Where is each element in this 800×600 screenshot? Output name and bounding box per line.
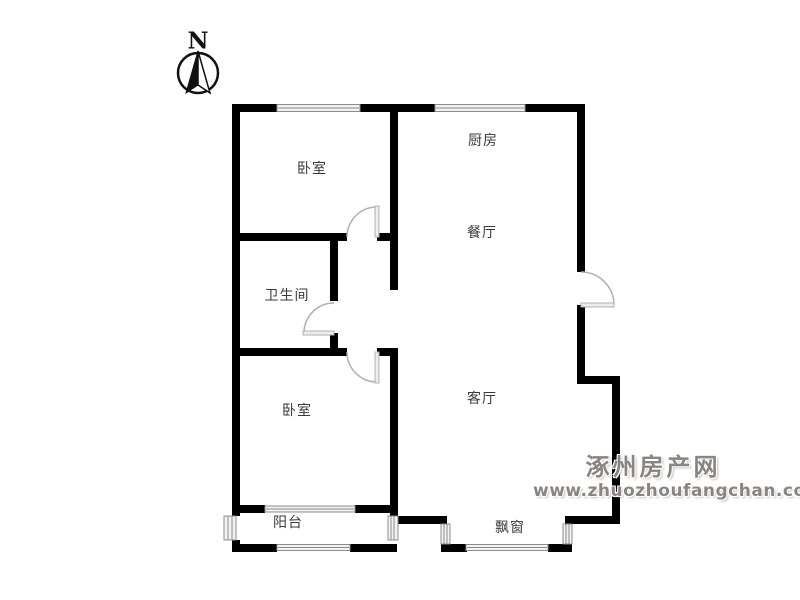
window-balcony-right: [388, 516, 398, 540]
window-bay-bottom: [466, 545, 548, 551]
room-label-bathroom: 卫生间: [265, 285, 310, 305]
window-bedroom-top: [277, 105, 360, 112]
wall-right-mid: [577, 305, 585, 384]
window-balcony-left: [224, 516, 236, 540]
wall-central-upper: [390, 112, 398, 290]
wall-right-lower: [612, 376, 620, 524]
wall-bay-bottom-left: [441, 544, 467, 552]
watermark-site-name: 涿州房产网: [533, 454, 773, 482]
watermark-url: www.zhuozhoufangchan.com: [533, 482, 773, 502]
window-bay-right-stub: [563, 524, 572, 544]
wall-bedroom-bottom-right: [390, 348, 398, 516]
wall-top-right: [525, 104, 585, 112]
room-label-living-room: 客厅: [467, 388, 497, 408]
room-label-bay-window: 飘窗: [495, 517, 525, 537]
north-arrow-icon: [198, 51, 210, 93]
doors: [303, 206, 614, 383]
room-label-balcony: 阳台: [273, 512, 303, 532]
wall-balcony-bottom-right: [350, 544, 397, 552]
wall-left: [232, 104, 240, 516]
wall-bay-bottom-right: [548, 544, 572, 552]
wall-bedroom-balcony-right: [355, 505, 397, 513]
door-bathroom: [303, 303, 334, 335]
door-bedroom-bottom: [347, 352, 379, 383]
room-label-dining-room: 餐厅: [467, 222, 497, 242]
wall-bottom-left-segment: [393, 516, 447, 524]
wall-bedroom-balcony-left: [237, 505, 265, 513]
compass: [178, 51, 218, 93]
wall-right-upper: [577, 104, 585, 272]
wall-bathroom-bottom-stub: [377, 348, 398, 356]
wall-top-mid: [360, 104, 435, 112]
watermark: 涿州房产网 www.zhuozhoufangchan.com: [533, 454, 773, 501]
door-bedroom-top: [347, 206, 379, 237]
window-bay-left-stub: [441, 524, 450, 544]
door-entry: [581, 272, 614, 307]
wall-bathroom-top-stub: [377, 233, 398, 241]
wall-bathroom-right-upper: [330, 237, 338, 301]
floor-plan-image: 卧室 厨房 餐厅 卫生间 卧室 客厅 阳台 飘窗 N 涿州房产网 www.zhu…: [0, 0, 800, 600]
room-label-bedroom-top: 卧室: [297, 158, 327, 178]
room-label-bedroom-bottom: 卧室: [282, 400, 312, 420]
room-label-kitchen: 厨房: [468, 130, 498, 150]
wall-balcony-bottom-left: [232, 544, 277, 552]
wall-bottom-right-segment: [565, 516, 620, 524]
compass-north-label: N: [187, 28, 208, 55]
window-kitchen: [435, 105, 525, 112]
floor-plan-svg: [0, 0, 800, 600]
wall-bathroom-bottom: [232, 348, 347, 356]
north-arrow-icon: [186, 51, 198, 93]
window-balcony-bottom: [277, 545, 350, 551]
